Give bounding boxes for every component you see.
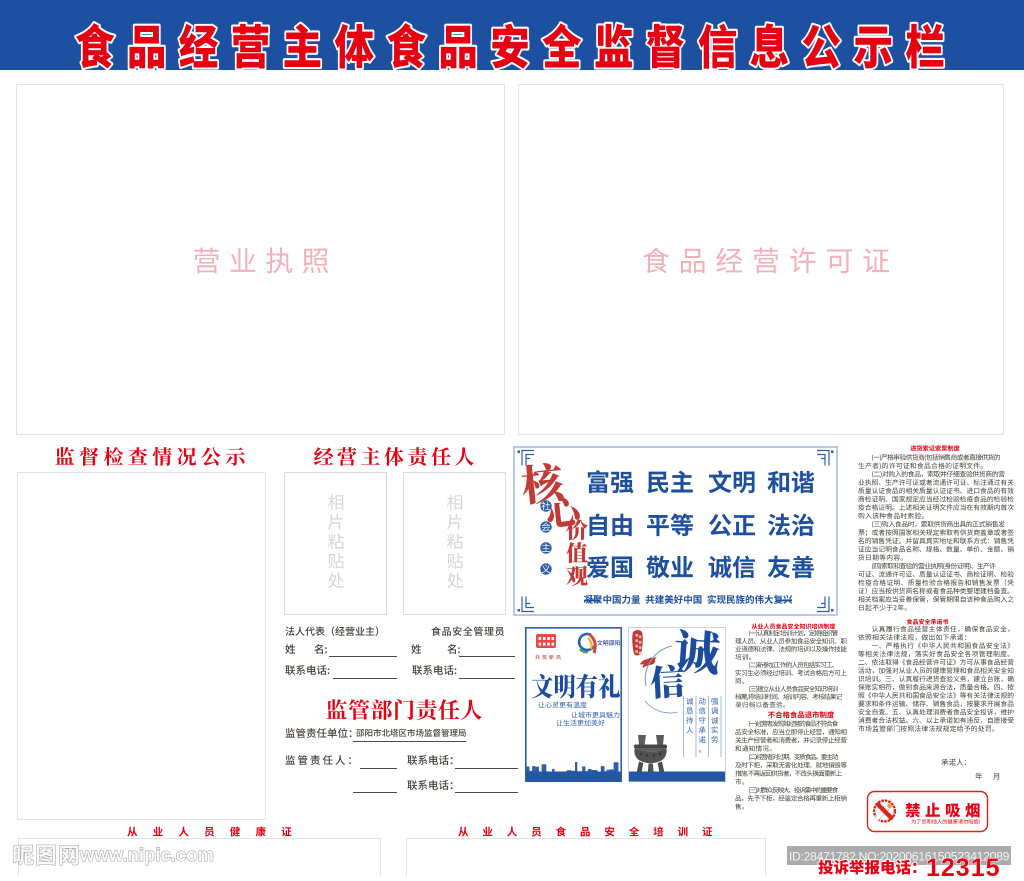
svg-text:12315: 12315 <box>926 854 1001 876</box>
svg-text:www.nipic.com: www.nipic.com <box>79 844 214 865</box>
